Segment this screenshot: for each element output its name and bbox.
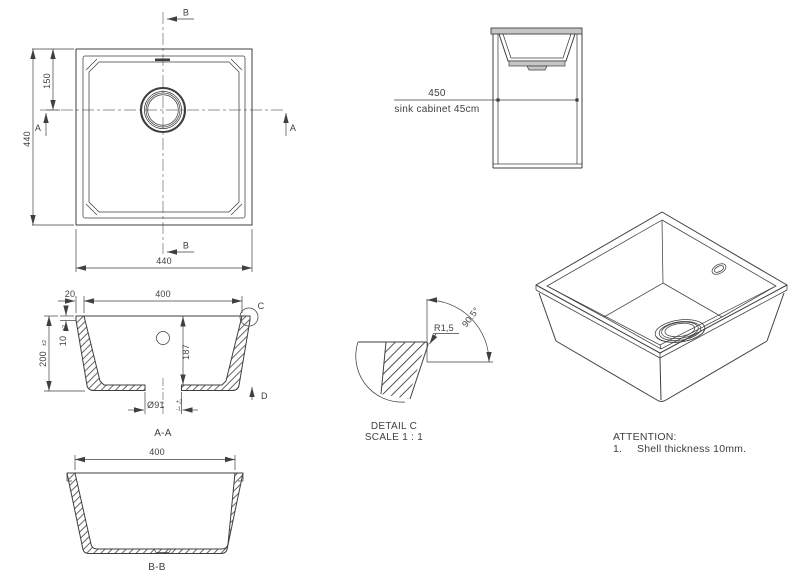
iso-overflow-hole xyxy=(710,262,727,277)
cabinet-caption: sink cabinet 45cm xyxy=(394,104,479,115)
aa-left-wall-section xyxy=(76,316,145,391)
notes-item-number: 1. xyxy=(613,443,622,455)
detail-angle-label: 90.5° xyxy=(460,305,482,329)
iso-bowl-bottom xyxy=(604,283,722,349)
section-marker-a-right: A xyxy=(286,113,296,136)
aa-depth-label: 187 xyxy=(181,344,191,360)
aa-height-tol: ±2 xyxy=(42,340,48,346)
aa-height-label: 200 xyxy=(38,351,48,367)
aa-overflow-hole xyxy=(157,332,170,345)
drain-outlet-stub xyxy=(527,66,547,70)
notes-heading: ATTENTION: xyxy=(613,431,677,443)
aa-right-wall-section xyxy=(182,316,251,391)
corner-bevel-ticks xyxy=(86,59,242,215)
aa-wall-top-label: 20 xyxy=(65,289,75,299)
section-bb-view: 400 B-B xyxy=(67,447,243,573)
detail-radius-label: R1,5 xyxy=(434,323,454,333)
isometric-view xyxy=(536,212,787,402)
aa-rim-thickness-tol: ±2 xyxy=(62,325,68,331)
countertop-slab xyxy=(491,28,582,34)
aa-rim-thickness-label: 10 xyxy=(58,336,68,346)
section-a-left-label: A xyxy=(35,123,41,133)
section-aa-view: 20 400 10 ±2 200 ±2 187 Ø91 +2 -1 C D A- xyxy=(38,289,268,439)
dim-width-label: 440 xyxy=(156,256,172,266)
section-marker-b-top: B xyxy=(167,8,194,20)
dim-drain-offset-label: 150 xyxy=(42,73,52,89)
sink-bowl-edge xyxy=(89,62,239,212)
section-b-bottom-label: B xyxy=(183,241,189,251)
iso-rim-inner xyxy=(547,220,776,345)
sink-rim-edge xyxy=(83,56,245,218)
detail-c-view: R1,5 90.5° DETAIL C SCALE 1 : 1 xyxy=(356,299,493,443)
bb-shell-section xyxy=(67,473,243,554)
aa-drain-tol-minus: -1 xyxy=(176,407,181,413)
iso-drain xyxy=(654,317,707,346)
notes-item-text: Shell thickness 10mm. xyxy=(637,443,746,455)
section-b-top-label: B xyxy=(183,8,189,18)
drawing-svg: 440 150 440 B B A A xyxy=(0,0,800,579)
radius-dimension: R1,5 xyxy=(430,323,460,344)
aa-inner-width-label: 400 xyxy=(155,289,171,299)
section-a-right-label: A xyxy=(290,123,296,133)
aa-drain-dia-label: Ø91 xyxy=(147,400,165,410)
detail-c-title: DETAIL C xyxy=(371,421,417,432)
sink-bottom-band xyxy=(509,61,565,66)
detail-c-scale: SCALE 1 : 1 xyxy=(365,432,423,443)
section-bb-title: B-B xyxy=(148,562,166,573)
direction-d-label: D xyxy=(261,391,268,401)
detail-c-ref-label: C xyxy=(258,301,265,311)
aa-drain-tol-plus: +2 xyxy=(176,400,182,406)
sink-in-cabinet xyxy=(499,34,575,70)
overflow-slot xyxy=(155,59,170,62)
bb-inner-width-label: 400 xyxy=(149,447,165,457)
section-marker-a-left: A xyxy=(35,113,46,136)
section-marker-b-bottom: B xyxy=(167,241,194,253)
iso-bowl-corner-edges xyxy=(549,221,774,349)
section-aa-title: A-A xyxy=(154,428,172,439)
notes-block: ATTENTION: 1. Shell thickness 10mm. xyxy=(613,431,746,455)
plan-view: 440 150 440 B B A A xyxy=(22,8,296,273)
cabinet-width-label: 450 xyxy=(428,88,446,99)
technical-drawing-sheet: 440 150 440 B B A A xyxy=(0,0,800,579)
cabinet-view: 450 sink cabinet 45cm xyxy=(394,28,582,168)
sink-outer-edge xyxy=(76,49,252,225)
iso-body xyxy=(536,285,787,402)
dim-height-label: 440 xyxy=(22,131,32,147)
cabinet-dimension: 450 sink cabinet 45cm xyxy=(394,88,579,115)
